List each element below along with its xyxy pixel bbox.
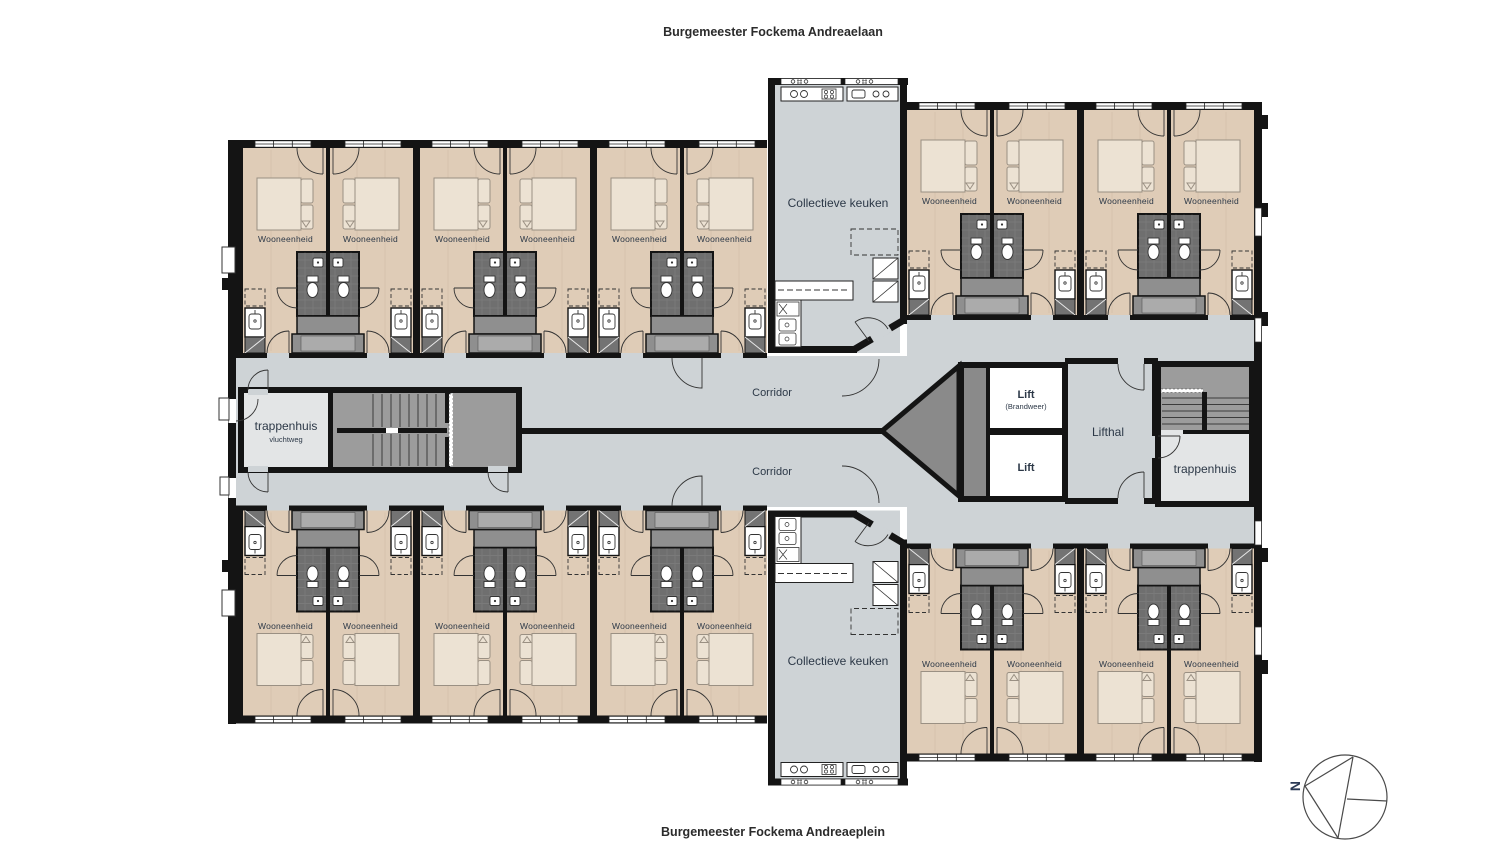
building-top-half [236,78,1261,358]
unit-label: Wooneenheid [343,234,398,244]
unit-label: Wooneenheid [258,234,313,244]
unit-label: Wooneenheid [697,621,752,631]
street-label-top: Burgemeester Fockema Andreaelaan [663,25,883,39]
door-opening [1118,498,1144,504]
unit-label: Wooneenheid [258,621,313,631]
lift-fire-label: Lift [1017,389,1034,401]
door-opening [1118,358,1144,364]
unit-label: Wooneenheid [612,234,667,244]
lift-hall-label: Lifthal [1092,425,1124,439]
corridor-divider-wall [516,428,882,434]
unit-label: Wooneenheid [697,234,752,244]
unit-label: Wooneenheid [1007,196,1062,206]
window [1255,318,1262,342]
unit-label: Wooneenheid [612,621,667,631]
kitchen-label: Collectieve keuken [788,654,889,668]
corridor-label: Corridor [752,387,792,399]
unit-label: Wooneenheid [520,621,575,631]
unit-label: Wooneenheid [922,196,977,206]
unit-label: Wooneenheid [1099,659,1154,669]
unit-label: Wooneenheid [435,234,490,244]
unit-label: Wooneenheid [1099,196,1154,206]
stairwell-escape-sublabel: vluchtweg [269,435,302,444]
escape-door [219,398,229,420]
floor-plan-canvas: Wooneenheid Wooneenheid Wooneenheid Woon… [0,0,1500,844]
door-opening [229,399,237,423]
corridor-label: Corridor [752,466,792,478]
door-opening [488,466,508,472]
unit-label: Wooneenheid [1184,196,1239,206]
lift-shaft-strip [964,368,986,496]
building-bottom-half [236,506,1261,786]
stair-landing [453,393,516,467]
door-opening [248,389,268,395]
unit-label: Wooneenheid [343,621,398,631]
stairwell-right-label: trappenhuis [1174,462,1237,476]
floor-plan-svg: Wooneenheid Wooneenheid Wooneenheid Woon… [0,0,1500,844]
kitchen-label: Collectieve keuken [788,196,889,210]
stairwell-escape-label: trappenhuis [255,419,318,433]
unit-label: Wooneenheid [1007,659,1062,669]
lift-fire-sublabel: (Brandweer) [1005,402,1047,411]
stairwell-right [1158,364,1252,504]
lift-label: Lift [1017,462,1034,474]
escape-door [220,477,229,495]
street-label-bottom: Burgemeester Fockema Andreaeplein [661,825,885,839]
door-opening [1161,430,1183,434]
window [222,590,235,616]
window [1255,627,1262,655]
north-label: N [1287,781,1303,791]
unit-label: Wooneenheid [1184,659,1239,669]
unit-label: Wooneenheid [922,659,977,669]
window [222,247,235,273]
door-opening [248,466,268,472]
unit-label: Wooneenheid [435,621,490,631]
window [1255,208,1262,236]
window [1255,521,1262,545]
north-arrow: N [1287,755,1387,839]
door-opening [229,478,237,498]
unit-label: Wooneenheid [520,234,575,244]
lift-block [961,365,1065,499]
